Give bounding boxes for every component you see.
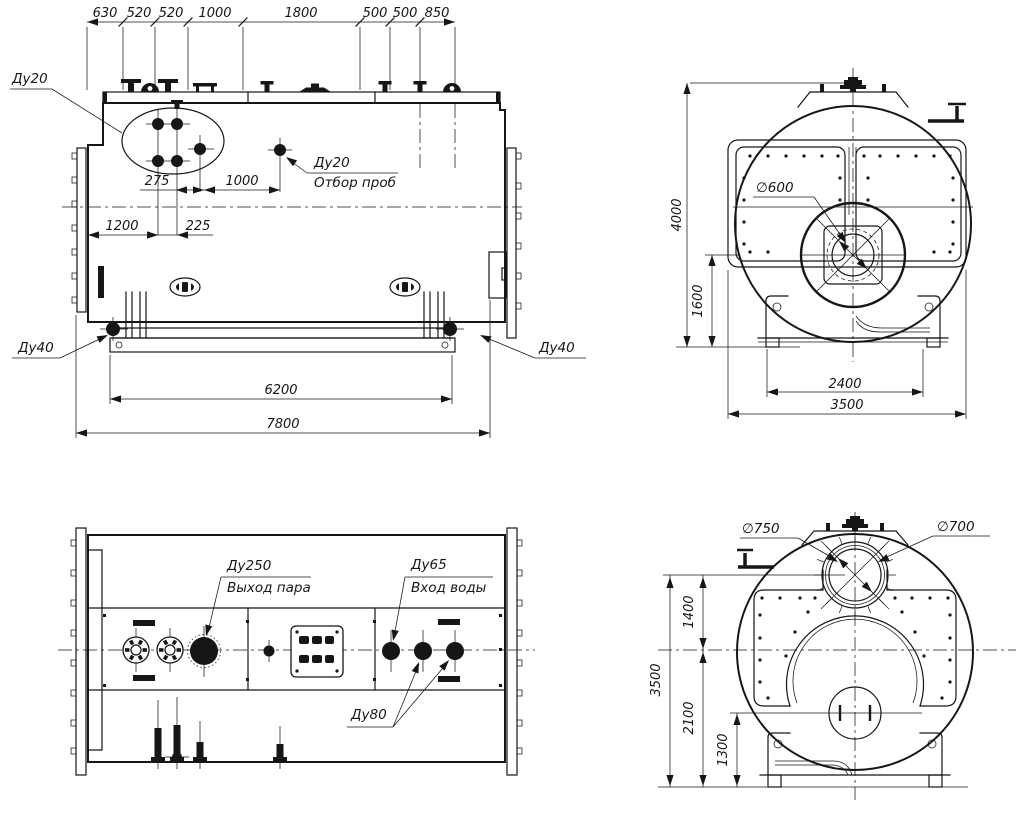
dim-1000-top: 1000 [198, 6, 231, 21]
shell-outline [62, 103, 522, 322]
terminal-plate [291, 626, 343, 677]
dim-6200: 6200 [264, 383, 297, 398]
dim-1300: 1300 [716, 733, 731, 766]
front-side-pipe-icon [928, 104, 966, 121]
dome-cover-icon [141, 83, 159, 92]
du40-left-text: Ду40 [17, 340, 54, 356]
rear-side-pipe-icon [737, 550, 774, 567]
nozzle-du20 [152, 118, 164, 130]
valve-icon [158, 79, 178, 92]
sample-desc-text: Отбор проб [314, 175, 396, 191]
safety-valve-icon [842, 516, 868, 531]
du250-desc-text: Выход пара [227, 580, 311, 596]
plan-view: Ду250 Выход пара Ду65 Вход воды Ду80 [58, 528, 535, 775]
dim-630: 630 [93, 6, 118, 21]
flanged-valve-icon [123, 628, 149, 672]
rear-dimensions: 3500 1400 2100 1300 [649, 575, 968, 787]
side-mid-dimensions: 275 1000 1200 225 [88, 174, 280, 239]
du250-label: Ду250 Выход пара [203, 558, 311, 637]
dim-2100: 2100 [682, 701, 697, 734]
dim-500b: 500 [393, 6, 418, 21]
dia600-text: ∅600 [756, 180, 794, 196]
du40-left-label: Ду40 [12, 332, 110, 358]
nozzle-du20 [152, 155, 164, 167]
dia700-text: ∅700 [937, 519, 975, 535]
du80-label: Ду80 [347, 658, 452, 727]
dim-1000: 1000 [225, 174, 258, 189]
front-dimensions: 4000 1600 2400 3500 [670, 83, 966, 419]
du65-label: Ду65 Вход воды [389, 557, 493, 642]
du20-text: Ду20 [11, 71, 48, 87]
stub-icon [379, 81, 392, 92]
front-view: ∅600 4000 16 [670, 68, 973, 419]
drain-nozzle-right [443, 322, 457, 336]
side-chain-dimension: 630 520 520 1000 1800 500 500 850 [87, 6, 455, 90]
dim-3500-front: 3500 [830, 398, 863, 413]
nozzle-du20 [171, 155, 183, 167]
left-flange-strip-plan [71, 528, 86, 775]
water-inlet-nozzle [382, 630, 400, 672]
dim-850: 850 [425, 6, 450, 21]
dia750-text: ∅750 [742, 521, 780, 537]
side-bottom-dimensions: 6200 7800 [76, 300, 490, 438]
du80-text: Ду80 [350, 707, 387, 723]
stub-icon [261, 81, 274, 92]
dim-520a: 520 [127, 6, 152, 21]
small-nozzle [264, 640, 275, 662]
handhole-icon [390, 278, 420, 296]
dim-275: 275 [145, 174, 170, 189]
du80-nozzle [414, 630, 464, 672]
flanged-valve-icon [157, 628, 183, 672]
nozzle-du20 [171, 118, 183, 130]
nozzle-du20 [194, 143, 206, 155]
dim-1600: 1600 [691, 284, 706, 317]
drain-nozzle-left [106, 322, 120, 336]
du40-right-text: Ду40 [538, 340, 575, 356]
dim-3500-rear: 3500 [649, 663, 664, 696]
dim-4000: 4000 [670, 198, 685, 231]
dim-7800: 7800 [266, 417, 299, 432]
front-burner-dia-label: ∅600 [753, 180, 849, 245]
side-view: 630 520 520 1000 1800 500 500 850 [10, 6, 586, 438]
flanged-stub-icon [193, 83, 217, 92]
stub-icon [414, 81, 427, 92]
sample-size-text: Ду20 [313, 155, 350, 171]
safety-valve-icon [840, 77, 866, 92]
dim-500a: 500 [363, 6, 388, 21]
low-dome-icon [299, 84, 331, 93]
bottom-nozzle-stubs [151, 697, 287, 769]
du40-right-label: Ду40 [478, 332, 586, 358]
du65-desc-text: Вход воды [411, 580, 487, 596]
dim-520b: 520 [159, 6, 184, 21]
drawing-canvas: 630 520 520 1000 1800 500 500 850 [0, 0, 1024, 817]
rear-view: ∅750 ∅700 [649, 512, 1016, 800]
top-platform [103, 92, 500, 103]
nozzle-group-detail [122, 100, 224, 235]
steam-outlet-nozzle [188, 626, 221, 677]
du65-size-text: Ду65 [410, 557, 447, 573]
sample-label: Ду20 Отбор проб [284, 154, 398, 191]
valve-icon [121, 79, 141, 92]
dim-1400: 1400 [682, 595, 697, 628]
du250-size-text: Ду250 [226, 558, 271, 574]
sample-nozzle [268, 138, 292, 192]
boiler-drawing: 630 520 520 1000 1800 500 500 850 [0, 0, 1024, 817]
dim-1200: 1200 [105, 219, 138, 234]
dim-225: 225 [186, 219, 211, 234]
right-flange-strip-plan [507, 528, 522, 775]
handhole-icon [170, 278, 200, 296]
dome-cover-icon [443, 83, 461, 92]
dim-1800: 1800 [284, 6, 317, 21]
dim-2400: 2400 [828, 377, 861, 392]
